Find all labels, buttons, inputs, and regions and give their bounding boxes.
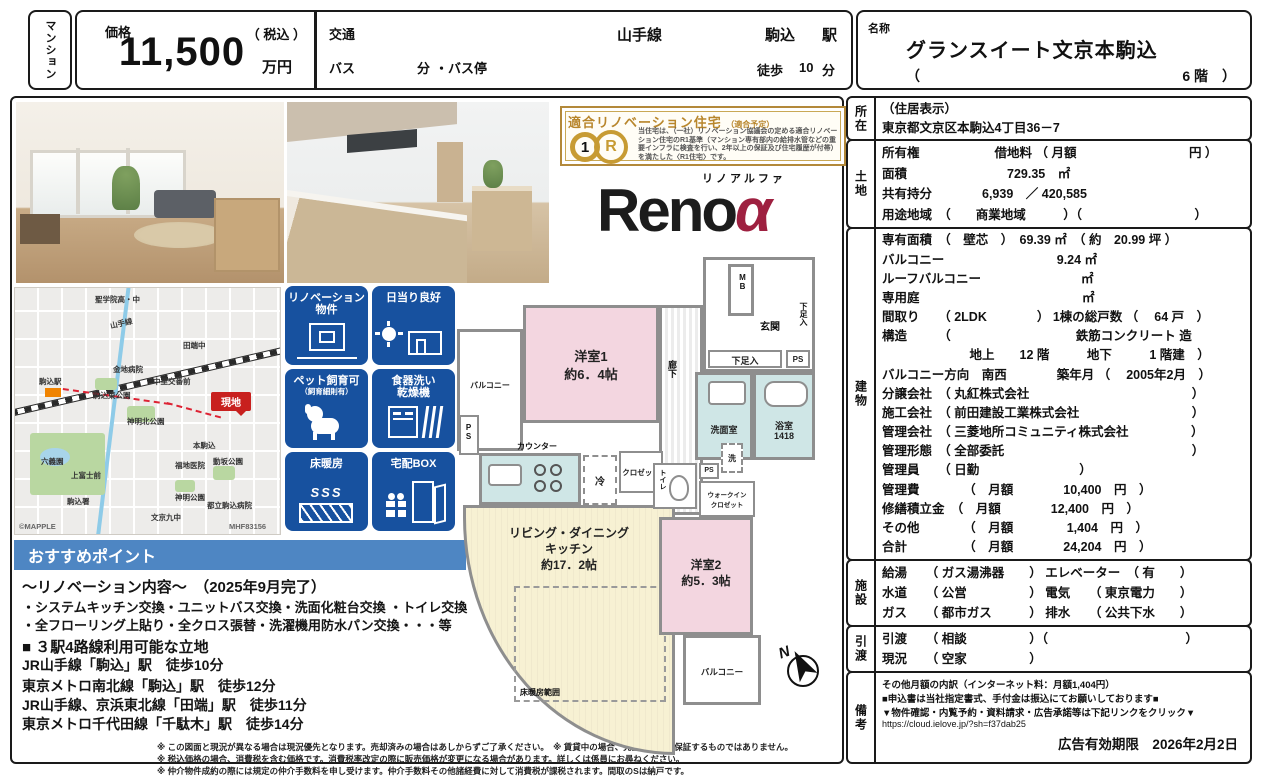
- plan-stove-burner: [534, 464, 546, 476]
- detail-row: 間取り （ 2LDK ） 1棟の総戸数 （ 64 戸 ）: [882, 311, 1244, 324]
- map-label: 六義園: [41, 456, 64, 467]
- access-bus-stop: ・バス停: [435, 58, 487, 77]
- detail-row: ガス （ 都市ガス ） 排水 （ 公共下水 ）: [882, 607, 1244, 620]
- plan-label: 約5．3帖: [662, 572, 750, 589]
- plan-kitchen-sink: [488, 464, 522, 486]
- map-label: 本駒込: [193, 440, 216, 451]
- renovation-icon: [285, 321, 368, 359]
- photo-window-mullion: [76, 148, 80, 214]
- access-walk-unit: 分: [822, 60, 835, 79]
- delivery-box-icon: [372, 487, 455, 525]
- fine-print-line: ※ 税込価格の場合、消費税を含む価格です。消費税率改定の際に販売価格が変更になる…: [157, 753, 684, 765]
- plan-label: 洗面室: [698, 423, 750, 436]
- map-label: 都立駒込病院: [207, 500, 252, 511]
- sunny-icon: [372, 321, 455, 359]
- detail-row: 面積 729.35 ㎡: [882, 168, 1244, 181]
- section-building: 建物 専有面積 （ 壁芯 ） 69.39 ㎡ （ 約 20.99 坪 ） バルコ…: [846, 227, 1252, 561]
- detail-row: 専用庭 ㎡: [882, 292, 1244, 305]
- compass-icon: N: [775, 641, 827, 693]
- detail-row: 用途地域 （ 商業地域 ）（ ）: [882, 209, 1244, 222]
- plan-label: カウンター: [517, 441, 557, 452]
- plan-label: バルコニー: [460, 380, 520, 391]
- plan-label: リビング・ダイニング: [466, 524, 672, 541]
- access-station-suffix: 駅: [822, 24, 837, 45]
- renovation-cert-seal: 適合リノベーション住宅 （適合予定） 1 R 当住宅は、（一社）リノベーション協…: [560, 106, 846, 166]
- plan-label: 下足入: [710, 354, 780, 367]
- property-type-label: マンション: [42, 20, 58, 80]
- detail-row: ルーフバルコニー ㎡: [882, 273, 1244, 286]
- badge-label: 食器洗い: [372, 375, 455, 387]
- floor-heating-icon: SSS: [285, 487, 368, 525]
- points-line: ■ ３駅4路線利用可能な立地: [22, 636, 209, 657]
- detail-row: 管理会社 （ 三菱地所コミュニティ株式会社 ）: [882, 426, 1244, 439]
- badge-label: 日当り良好: [372, 292, 455, 304]
- plan-label: 下足入: [798, 302, 809, 326]
- plan-bedroom-1: 洋室1 約6．4帖: [523, 305, 659, 423]
- photo-kitchen: [287, 102, 549, 283]
- badge-floor-heating: 床暖房 SSS: [285, 452, 368, 531]
- plan-label: クロゼット: [701, 499, 753, 509]
- r1-logo-icon: 1 R: [570, 130, 634, 164]
- floor-value: 6 階 ）: [1182, 66, 1236, 86]
- section-location: 所在 （住居表示） 東京都文京区本駒込4丁目36－7: [846, 96, 1252, 141]
- dishwasher-icon: [372, 404, 455, 442]
- plan-label: ウォークイン: [701, 489, 753, 499]
- plan-label: PS: [701, 467, 717, 474]
- points-line: ・全フローリング上貼り・全クロス張替・洗濯機用防水パン交換・・・等: [22, 615, 452, 634]
- plan-sink: [708, 381, 746, 405]
- plan-label: バルコニー: [686, 666, 758, 678]
- floor-paren-open: （: [906, 66, 920, 86]
- plan-label: トイレ: [657, 469, 667, 490]
- plan-ps-mid: PS: [699, 463, 719, 479]
- badge-dishwasher: 食器洗い 乾燥機: [372, 369, 455, 448]
- reno-text: Reno: [597, 177, 735, 244]
- map-label: 上富士前: [71, 470, 101, 481]
- map-label: 山手線: [109, 316, 133, 332]
- plan-label: 洋室1: [526, 346, 656, 365]
- price-unit: 万円: [262, 56, 292, 77]
- detail-row: 東京都文京区本駒込4丁目36－7: [882, 122, 1244, 135]
- price-section: 価格 11,500 （ 税込 ） 万円: [77, 12, 317, 88]
- main-content-box: 適合リノベーション住宅 （適合予定） 1 R 当住宅は、（一社）リノベーション協…: [10, 96, 844, 764]
- detail-row: 専有面積 （ 壁芯 ） 69.39 ㎡ （ 約 20.99 坪 ）: [882, 234, 1244, 247]
- park-shinmei: [175, 480, 195, 492]
- plan-toilet-bowl: [669, 475, 689, 501]
- detail-row: バルコニー方向 南西 築年月 （ 2005年2月 ）: [882, 369, 1244, 382]
- badge-renovation: リノベーション 物件: [285, 286, 368, 365]
- plan-shoe-box: 下足入: [708, 350, 782, 368]
- plan-ps: PS: [786, 350, 810, 368]
- section-land: 土地 所有権 借地料 （ 月額 円 ） 面積 729.35 ㎡ 共有持分 6,9…: [846, 139, 1252, 229]
- plan-label: 床暖房範囲: [520, 687, 560, 698]
- access-label: 交通: [329, 24, 355, 43]
- detail-row: 管理形態 （ 全部委託 ）: [882, 445, 1244, 458]
- section-side-label: 備考: [853, 704, 870, 732]
- plan-ps-left: PS: [459, 415, 479, 455]
- detail-row: 合計 （ 月額 24,204 円 ）: [882, 541, 1244, 554]
- price-tax-note: （ 税込 ）: [247, 24, 306, 43]
- section-side-label: 建物: [853, 380, 870, 408]
- plan-label: 1418: [756, 431, 812, 441]
- section-side-label: 所在: [853, 105, 870, 133]
- plan-ldk: リビング・ダイニング キッチン 約17．2帖 床暖房範囲: [463, 505, 675, 755]
- access-station: 駒込: [765, 24, 795, 45]
- remarks-line: ▼物件確認・内覧予約・資料請求・広告承諾等は下記リンクをクリック▼: [882, 705, 1244, 719]
- detail-row: 管理員 （ 日勤 ）: [882, 464, 1244, 477]
- plan-stove-burner: [550, 480, 562, 492]
- reno-alpha-char: α: [735, 177, 769, 244]
- remarks-line: その他月額の内訳（インターネット料：月額1,404円）: [882, 677, 1244, 691]
- park-dozaka: [213, 466, 235, 480]
- photo-counter-run: [287, 190, 467, 283]
- access-bus-label: バス: [329, 58, 355, 77]
- points-line: JR山手線、京浜東北線「田端」駅 徒歩11分: [22, 695, 307, 715]
- plan-label: MB: [738, 273, 747, 291]
- photo-plant: [112, 166, 140, 210]
- photo-island-counter: [472, 186, 532, 251]
- badge-label: 宅配BOX: [372, 458, 455, 470]
- detail-row: 修繕積立金 （ 月額 12,400 円 ）: [882, 503, 1244, 516]
- points-line: 東京メトロ千代田線「千駄木」駅 徒歩14分: [22, 714, 304, 734]
- plan-label: 冷: [585, 473, 615, 488]
- photo-rug: [134, 222, 224, 248]
- points-title: おすすめポイント: [28, 543, 156, 567]
- station-marker: [45, 388, 61, 397]
- plan-toilet: トイレ: [653, 463, 697, 509]
- access-section: 交通 山手線 駒込 駅 バス 分 ・バス停 徒歩 10 分: [317, 12, 851, 88]
- section-handover: 引渡 引渡 （ 相談 ）（ ） 現況 （ 空家 ）: [846, 625, 1252, 673]
- park-komagomehigashi: [95, 378, 117, 390]
- section-side-label: 引渡: [853, 635, 870, 663]
- plan-balcony-2: バルコニー: [683, 635, 761, 705]
- section-side-label: 土地: [853, 170, 870, 198]
- badge-sunny: 日当り良好: [372, 286, 455, 365]
- points-line: ・システムキッチン交換・ユニットバス交換・洗面化粧台交換 ・トイレ交換: [22, 597, 467, 616]
- plan-kitchen-counter: [479, 453, 581, 505]
- plan-stove-burner: [550, 464, 562, 476]
- plan-label: PS: [788, 355, 808, 364]
- remarks-line: ■申込書は当社指定書式、手付金は振込にてお願いしております■: [882, 691, 1244, 705]
- detail-row: 水道 （ 公営 ） 電気 （ 東京電力 ）: [882, 587, 1244, 600]
- map-label: 神明公園: [175, 492, 205, 503]
- property-flyer: マンション 価格 11,500 （ 税込 ） 万円 交通 山手線 駒込 駅 バス…: [0, 0, 1280, 778]
- points-line: 東京メトロ南北線「駒込」駅 徒歩12分: [22, 676, 276, 696]
- plan-bathtub: [764, 381, 808, 407]
- feature-badges: リノベーション 物件 日当り良好: [285, 286, 455, 531]
- photo-living-room: [16, 102, 284, 283]
- section-facilities: 施設 給湯 （ ガス湯沸器 ） エレベーター （ 有 ） 水道 （ 公営 ） 電…: [846, 559, 1252, 627]
- seal-description: 当住宅は、（一社）リノベーション協議会の定める適合リノベーション住宅のR1基準（…: [638, 128, 840, 162]
- map-label: 駒込駅: [39, 376, 62, 387]
- map-label: 動坂公園: [213, 456, 243, 467]
- map-label: 中里交番前: [153, 376, 191, 387]
- plan-bathroom: 浴室 1418: [753, 372, 815, 460]
- section-remarks: 備考 その他月額の内訳（インターネット料：月額1,404円） ■申込書は当社指定…: [846, 671, 1252, 764]
- plan-label: 廊下: [666, 360, 679, 378]
- detail-row: 引渡 （ 相談 ）（ ）: [882, 633, 1244, 646]
- detail-row: 管理費 （ 月額 10,400 円 ）: [882, 484, 1244, 497]
- plan-stove-burner: [534, 480, 546, 492]
- detail-row: （住居表示）: [882, 103, 1244, 116]
- map-label: 聖学院高・中: [95, 294, 140, 305]
- photo-plant: [483, 160, 503, 188]
- plan-bedroom-2: 洋室2 約5．3帖: [659, 517, 753, 635]
- detail-row: 所有権 借地料 （ 月額 円 ）: [882, 147, 1244, 160]
- fine-print-line: ※ 仲介物件成約の際には規定の仲介手数料を申し受けます。仲介手数料その他諸経費に…: [157, 765, 689, 777]
- location-map: 現地 聖学院高・中 山手線 駒込駅 田端中 金地病院 中里交番前 駒込東公園 神…: [14, 287, 281, 535]
- badge-delivery-box: 宅配BOX: [372, 452, 455, 531]
- plan-entrance: MB 玄関 下足入 下足入 PS: [703, 257, 815, 372]
- points-header: おすすめポイント: [14, 540, 466, 570]
- badge-label: 物件: [285, 304, 368, 316]
- name-box: 名称 グランスイート文京本駒込 （ 6 階 ）: [856, 10, 1252, 90]
- plan-mb: MB: [728, 264, 754, 316]
- remarks-url-link[interactable]: https://cloud.ielove.jp/?sh=f37dab25: [882, 719, 1244, 729]
- reno-wordmark: Renoα: [597, 176, 769, 245]
- detail-row: その他 （ 月額 1,404 円 ）: [882, 522, 1244, 535]
- map-label: 田端中: [183, 340, 206, 351]
- detail-row: 分譲会社 （ 丸紅株式会社 ）: [882, 388, 1244, 401]
- access-walk-min: 10: [799, 60, 813, 75]
- detail-row: 現況 （ 空家 ）: [882, 653, 1244, 666]
- map-credit: ©MAPPLE: [19, 522, 56, 531]
- map-label: 金地病院: [113, 364, 143, 375]
- reno-alpha-logo: リノアルファ Renoα: [587, 170, 827, 256]
- access-walk-label: 徒歩: [757, 60, 783, 79]
- plan-refrigerator: 冷: [583, 455, 617, 505]
- plan-label: 洋室2: [662, 556, 750, 573]
- detail-row: バルコニー 9.24 ㎡: [882, 254, 1244, 267]
- badge-label: 乾燥機: [372, 387, 455, 399]
- map-label: 福地医院: [175, 460, 205, 471]
- fine-print-line: ※ この図面と現況が異なる場合は現況優先となります。売却済みの場合はあしからずご…: [157, 741, 793, 753]
- r1-logo-r: R: [594, 130, 628, 164]
- badge-sublabel: （飼育細則有）: [285, 387, 368, 396]
- map-code: MHF83156: [229, 522, 266, 531]
- points-line: ～リノベーション内容～ （2025年9月完了）: [22, 576, 326, 597]
- pet-icon: [285, 404, 368, 442]
- ad-expiry-date: 広告有効期限 2026年2月2日: [882, 733, 1244, 753]
- photo-sofa: [154, 190, 216, 218]
- plan-label: 約6．4帖: [526, 364, 656, 383]
- compass-n-label: N: [776, 642, 793, 662]
- plan-laundry: 洗: [721, 443, 743, 473]
- plan-label: 洗: [723, 453, 741, 464]
- badge-label: リノベーション: [285, 292, 368, 304]
- badge-label: 床暖房: [285, 458, 368, 470]
- property-name: グランスイート文京本駒込: [906, 34, 1158, 63]
- plan-floor-heating-zone: 床暖房範囲: [514, 586, 666, 702]
- section-side-label: 施設: [853, 579, 870, 607]
- detail-row: 給湯 （ ガス湯沸器 ） エレベーター （ 有 ）: [882, 567, 1244, 580]
- access-bus-min: 分: [417, 58, 430, 77]
- map-label: 駒込署: [67, 496, 90, 507]
- photo-tv-board: [20, 214, 60, 244]
- detail-row: 構造 （ 鉄筋コンクリート 造: [882, 330, 1244, 343]
- map-label: 文京九中: [151, 512, 181, 523]
- detail-row: 施工会社 （ 前田建設工業株式会社 ）: [882, 407, 1244, 420]
- detail-row: 地上 12 階 地下 1 階建 ）: [882, 349, 1244, 362]
- floor-plan: バルコニー 洋室1 約6．4帖 廊下 MB 玄関 下足入 下足入 PS: [457, 257, 847, 737]
- photo-hall-door: [437, 142, 463, 202]
- plan-label: PS: [464, 423, 473, 441]
- property-type-tab: マンション: [28, 10, 72, 90]
- plan-label: 約17．2帖: [466, 556, 672, 573]
- points-line: JR山手線「駒込」駅 徒歩10分: [22, 655, 223, 675]
- price-value: 11,500: [107, 30, 257, 75]
- plan-label: 玄関: [760, 318, 780, 333]
- photo-counter: [214, 198, 280, 272]
- site-marker: 現地: [211, 392, 251, 411]
- access-line: 山手線: [617, 24, 662, 45]
- detail-row: 共有持分 6,939 ／ 420,585: [882, 188, 1244, 201]
- badge-label: ペット飼育可: [285, 375, 368, 387]
- price-access-box: 価格 11,500 （ 税込 ） 万円 交通 山手線 駒込 駅 バス 分 ・バス…: [75, 10, 853, 90]
- name-floor-row: （ 6 階 ）: [906, 66, 1236, 86]
- plan-label: キッチン: [466, 540, 672, 557]
- name-label: 名称: [868, 20, 890, 36]
- plan-walk-in-closet: ウォークイン クロゼット: [699, 481, 755, 517]
- map-label: 神明北公園: [127, 416, 165, 427]
- map-label: 駒込東公園: [93, 390, 131, 401]
- badge-pet: ペット飼育可 （飼育細則有）: [285, 369, 368, 448]
